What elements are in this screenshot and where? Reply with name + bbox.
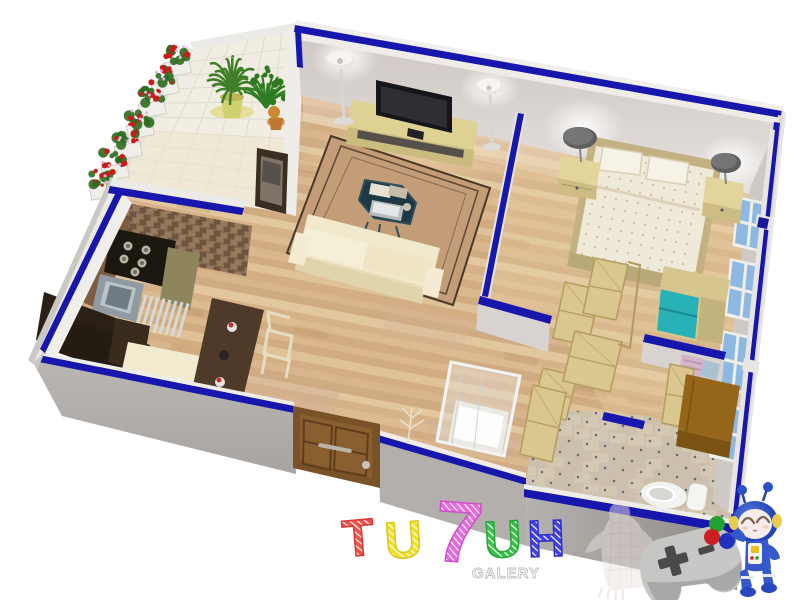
svg-text:U: U: [383, 510, 425, 570]
svg-text:GALERY: GALERY: [472, 565, 540, 582]
svg-text:U: U: [483, 510, 524, 570]
svg-text:T: T: [340, 508, 377, 569]
svg-text:H: H: [526, 510, 566, 569]
